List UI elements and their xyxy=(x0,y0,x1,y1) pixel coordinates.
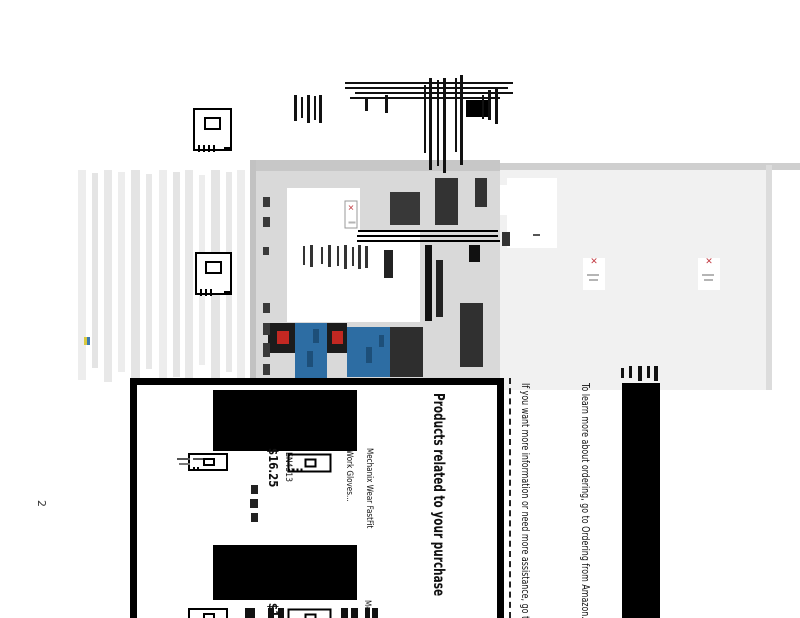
faint-text-streak xyxy=(118,172,125,372)
ink-smudge xyxy=(424,85,426,153)
broken-image-icon: ✕ xyxy=(698,258,720,290)
ink-smudge xyxy=(344,245,347,269)
ink-smudge xyxy=(357,235,498,237)
ink-smudge xyxy=(263,217,270,227)
broken-image-icon: ✕ xyxy=(583,258,605,290)
ink-smudge xyxy=(352,247,354,266)
ink-smudge xyxy=(251,485,258,494)
product-price: $16.25 xyxy=(266,448,280,494)
ink-smudge xyxy=(358,245,361,269)
faint-text-streak xyxy=(92,173,98,368)
ink-smudge xyxy=(385,95,388,113)
tiny-caption-marks xyxy=(176,455,210,469)
ink-smudge xyxy=(337,246,339,266)
product-title: Mechanix Wear FastFit xyxy=(364,448,374,548)
media-placeholder-icon xyxy=(195,252,232,295)
ink-smudge xyxy=(629,366,632,378)
link-remnant-yellow xyxy=(84,337,87,345)
ink-smudge xyxy=(443,78,446,173)
faint-text-streak xyxy=(104,170,112,382)
ink-smudge xyxy=(502,232,510,246)
secondary-placeholder-slot xyxy=(188,608,228,618)
product-title: Work Gloves... xyxy=(344,450,354,515)
ink-smudge xyxy=(365,97,368,111)
help-line-2: If you want more information or need mor… xyxy=(519,383,532,618)
ink-smudge xyxy=(245,608,255,618)
ink-smudge xyxy=(621,368,624,378)
red-x-icon: ✕ xyxy=(346,205,357,213)
ink-smudge xyxy=(263,323,270,335)
ink-smudge xyxy=(263,197,270,207)
related-products-heading: Products related to your purchase xyxy=(430,393,448,618)
red-x-icon: ✕ xyxy=(583,258,605,267)
broken-image-slot: ✕ xyxy=(700,258,722,290)
caption-slot xyxy=(176,455,210,469)
thumbnail-red xyxy=(268,323,295,353)
ink-smudge xyxy=(372,608,378,618)
ink-smudge xyxy=(638,366,642,381)
panel-white-patch xyxy=(507,178,557,248)
faint-text-streak xyxy=(159,170,167,385)
black-banner xyxy=(622,383,660,618)
ink-smudge xyxy=(310,245,313,267)
ink-smudge xyxy=(263,364,270,375)
ink-smudge xyxy=(365,608,370,618)
ink-smudge xyxy=(460,75,463,165)
rating-count: EN4313 xyxy=(283,452,293,487)
ink-smudge xyxy=(455,78,457,152)
ink-smudge xyxy=(654,366,658,381)
document-page: ✕ ✕ ✕ xyxy=(0,0,800,618)
ink-smudge xyxy=(301,97,303,118)
media-placeholder-icon xyxy=(188,608,228,618)
red-x-icon: ✕ xyxy=(698,258,720,267)
panel-white-patch xyxy=(500,185,512,215)
ink-smudge xyxy=(319,95,322,123)
ink-smudge xyxy=(466,100,490,117)
product-image xyxy=(213,390,357,451)
faint-text-streak xyxy=(173,172,180,377)
ink-smudge xyxy=(278,608,284,618)
ink-smudge xyxy=(314,96,316,120)
faint-text-streak xyxy=(78,170,86,380)
media-placeholder-icon xyxy=(193,108,232,151)
ink-smudge xyxy=(469,245,480,262)
ink-smudge xyxy=(437,80,439,166)
placeholder-icon-slot xyxy=(195,252,232,295)
ink-smudge xyxy=(647,366,650,378)
grey-window-bottom-edge xyxy=(250,160,256,390)
ink-smudge xyxy=(341,608,348,618)
ink-smudge xyxy=(294,95,297,121)
faint-text-streak xyxy=(131,170,140,385)
ink-smudge xyxy=(328,245,331,267)
help-line-1: To learn more about ordering, go to Orde… xyxy=(579,383,592,618)
product-image xyxy=(213,545,357,600)
thumbnail-blue xyxy=(295,323,327,380)
faint-text-streak xyxy=(146,174,152,369)
link-remnant-blue xyxy=(87,337,90,345)
page-number: 2 xyxy=(35,500,48,507)
broken-image-slot: ✕ xyxy=(585,258,607,290)
ink-smudge xyxy=(357,240,500,242)
faint-text-streak xyxy=(237,170,245,385)
ink-smudge xyxy=(460,303,483,367)
ink-smudge xyxy=(263,303,270,313)
ink-smudge xyxy=(365,246,368,268)
thumbnail-blue xyxy=(347,327,390,377)
ink-smudge xyxy=(250,499,258,508)
rating-placeholder-slot xyxy=(288,608,332,618)
ink-smudge xyxy=(495,88,498,124)
ink-smudge xyxy=(351,608,358,618)
ink-smudge xyxy=(345,87,508,89)
rotated-scanned-page: ✕ ✕ ✕ xyxy=(0,0,800,618)
ink-smudge xyxy=(475,178,487,207)
rating-placeholder-slot xyxy=(288,453,332,472)
broken-image-icon: ✕ xyxy=(345,201,358,229)
ink-smudge xyxy=(263,343,270,357)
ink-smudge xyxy=(435,178,458,225)
ink-smudge xyxy=(251,513,258,522)
ink-smudge xyxy=(307,95,310,123)
rating-placeholder-icon xyxy=(288,453,332,472)
ink-smudge xyxy=(429,78,432,170)
ink-smudge xyxy=(488,90,491,120)
rating-placeholder-icon xyxy=(288,608,332,618)
ink-smudge xyxy=(390,192,420,225)
placeholder-icon-slot xyxy=(193,108,232,151)
ink-smudge xyxy=(358,230,498,232)
broken-image-slot: ✕ xyxy=(344,200,357,228)
thumbnail-red xyxy=(327,323,347,353)
ink-smudge xyxy=(384,250,393,278)
ink-smudge xyxy=(533,234,540,236)
ink-smudge xyxy=(268,608,274,618)
window-white-box xyxy=(287,232,420,322)
ink-smudge xyxy=(482,95,484,119)
faint-text-streak xyxy=(185,170,193,385)
dashed-separator xyxy=(509,378,511,618)
grey-panel-top-edge xyxy=(766,165,772,390)
ink-smudge xyxy=(436,260,443,317)
ink-smudge xyxy=(390,327,423,377)
ink-smudge xyxy=(263,247,269,255)
ink-smudge xyxy=(425,245,432,321)
ink-smudge xyxy=(321,247,323,264)
ink-smudge xyxy=(303,246,305,265)
